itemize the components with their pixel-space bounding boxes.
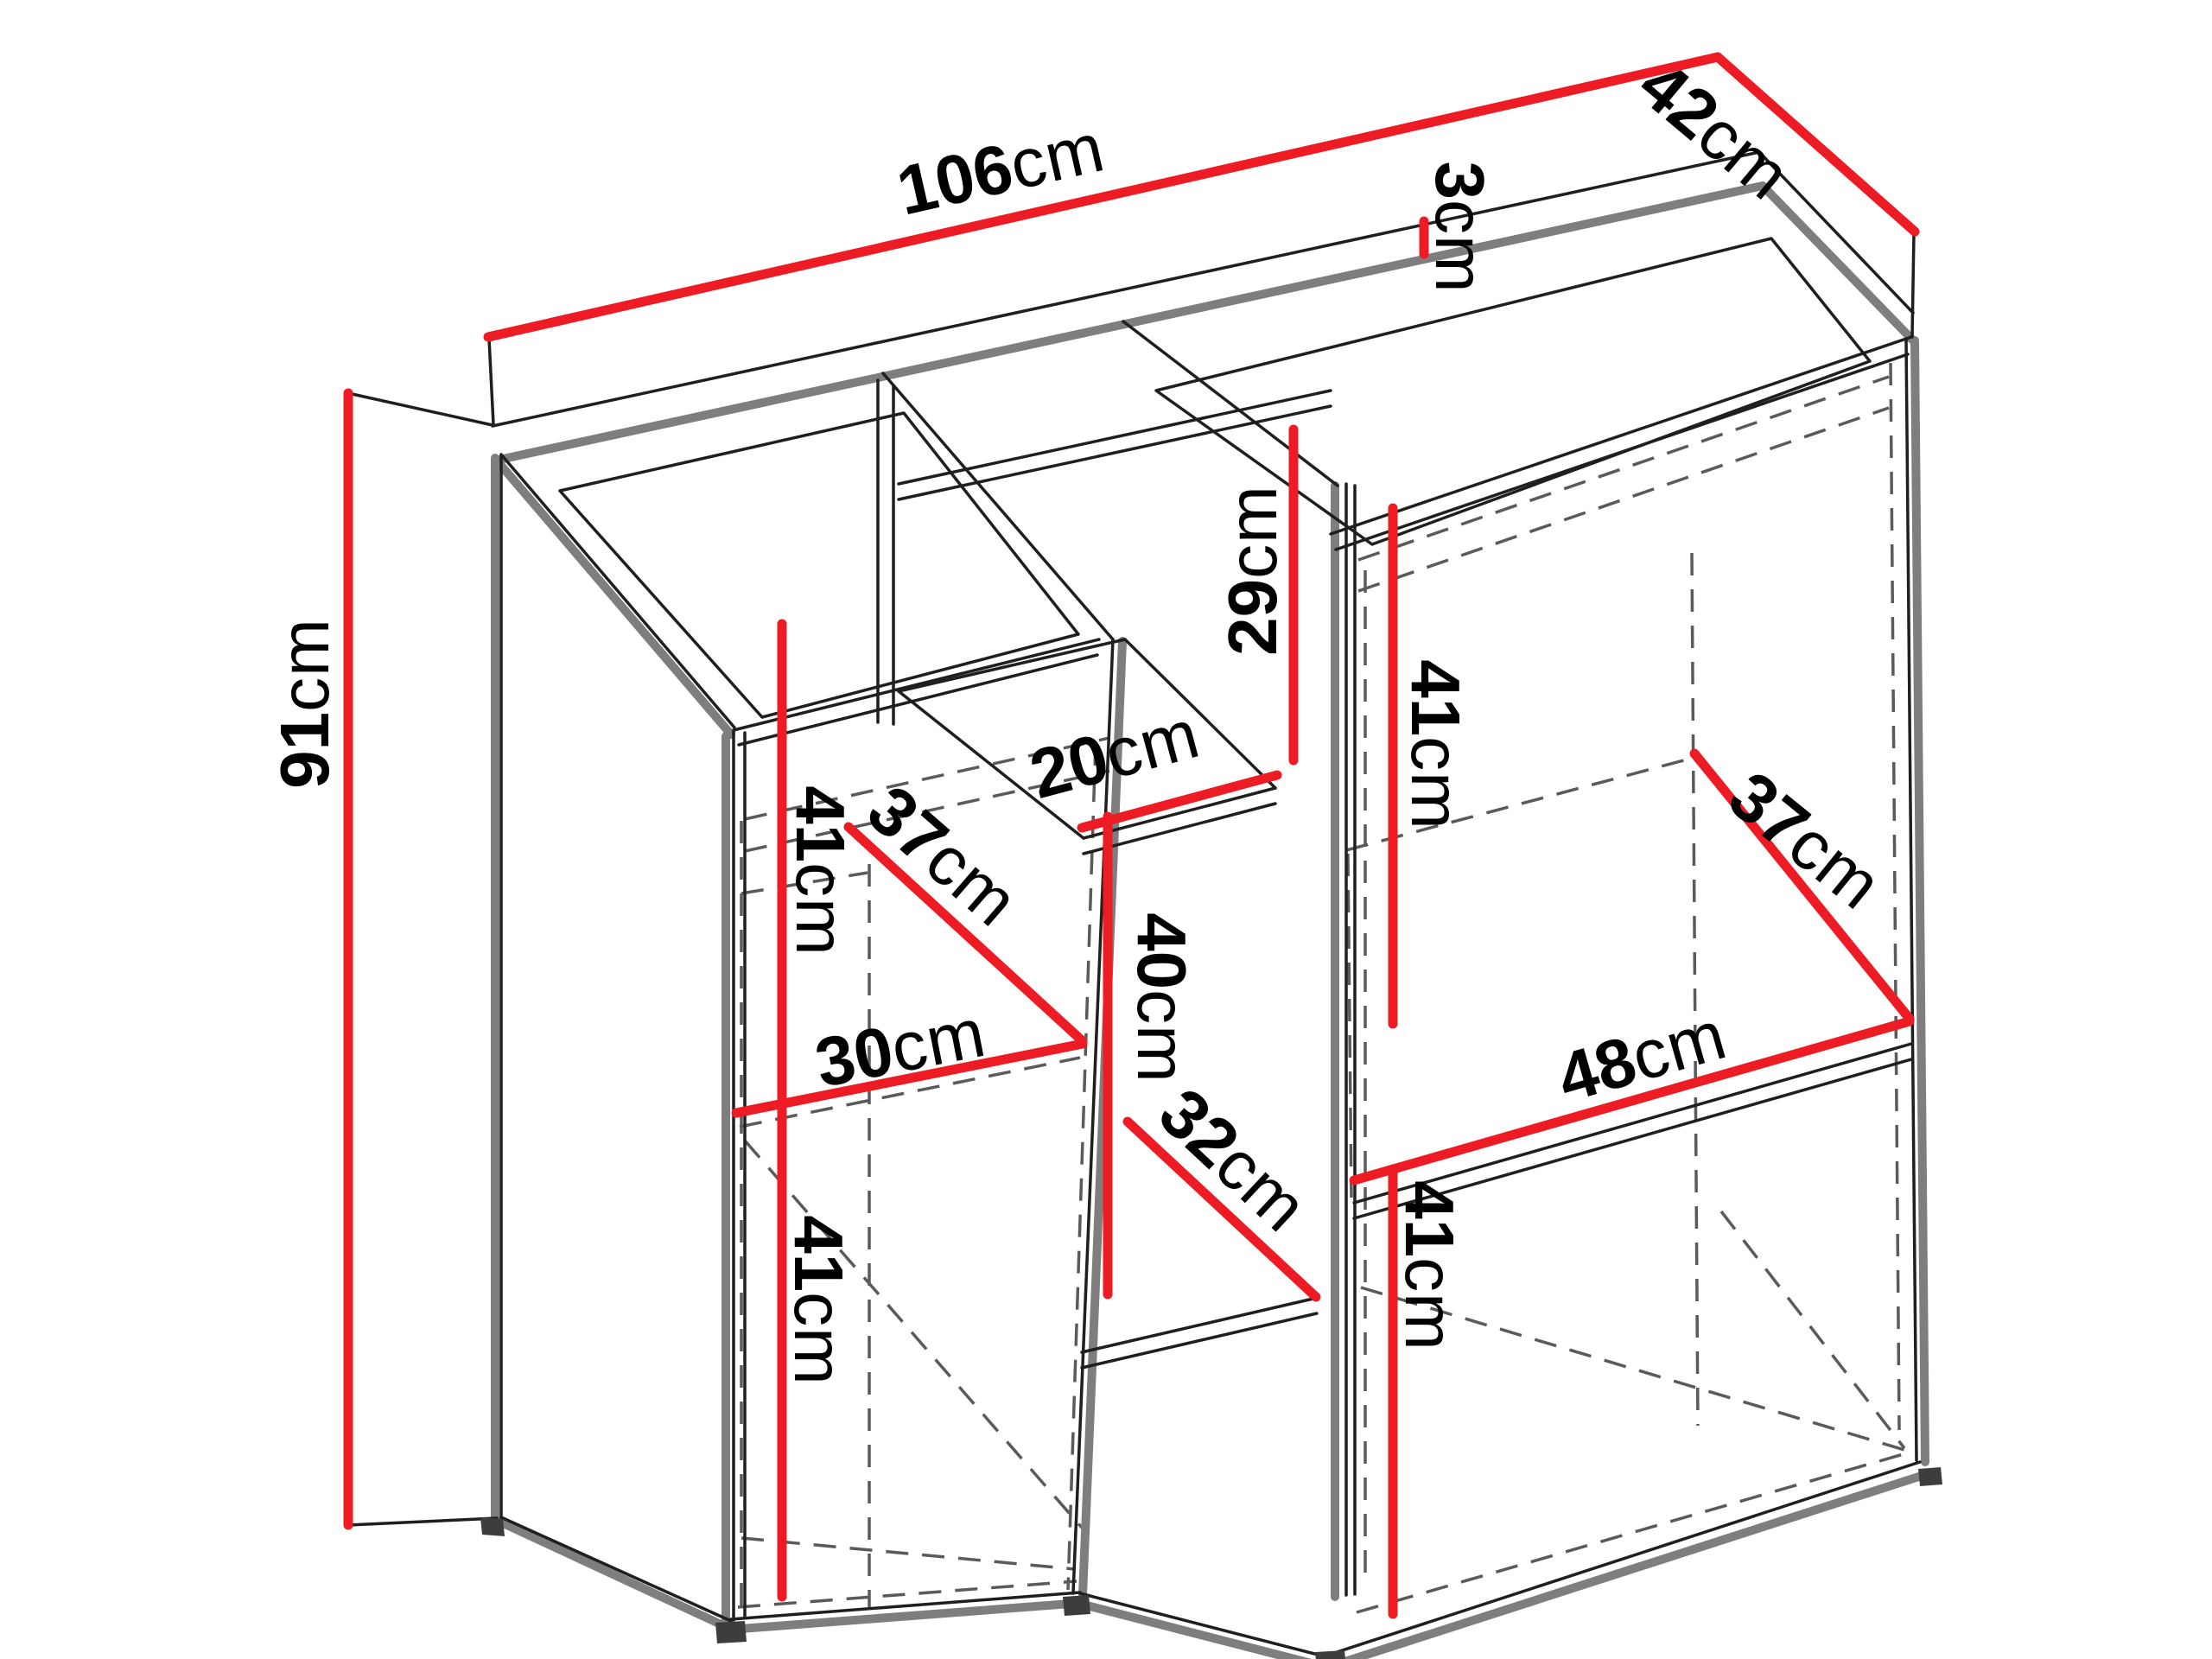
left-cabinet (348, 373, 1113, 1621)
label-left-shelf-width: 30cm (810, 993, 992, 1101)
label-right-upper-height: 41cm (1398, 659, 1475, 830)
label-top-thickness: 3cm (1422, 161, 1499, 293)
cabinet-feet (480, 1467, 1942, 1659)
label-left-lower-height: 41cm (781, 1215, 858, 1386)
cabinet-outlines (348, 152, 1920, 1656)
label-middle-upper-opening: 29cm (1214, 485, 1291, 656)
label-right-lower-height: 41cm (1392, 1180, 1469, 1351)
label-overall-height: 91cm (266, 618, 343, 789)
hidden-edges (738, 363, 1906, 1612)
diagram-canvas: 106cm 42cm 3cm 91cm 29cm 20cm 40cm 32cm … (0, 0, 2212, 1659)
shadow-edges (495, 186, 1927, 1659)
dimension-lines (348, 57, 1915, 1614)
label-left-upper-height: 41cm (783, 785, 860, 957)
right-cabinet (1123, 238, 1920, 1656)
furniture-dimension-drawing: 106cm 42cm 3cm 91cm 29cm 20cm 40cm 32cm … (0, 0, 2212, 1659)
label-overall-width: 106cm (890, 108, 1111, 229)
label-middle-lower-opening: 40cm (1124, 912, 1201, 1084)
